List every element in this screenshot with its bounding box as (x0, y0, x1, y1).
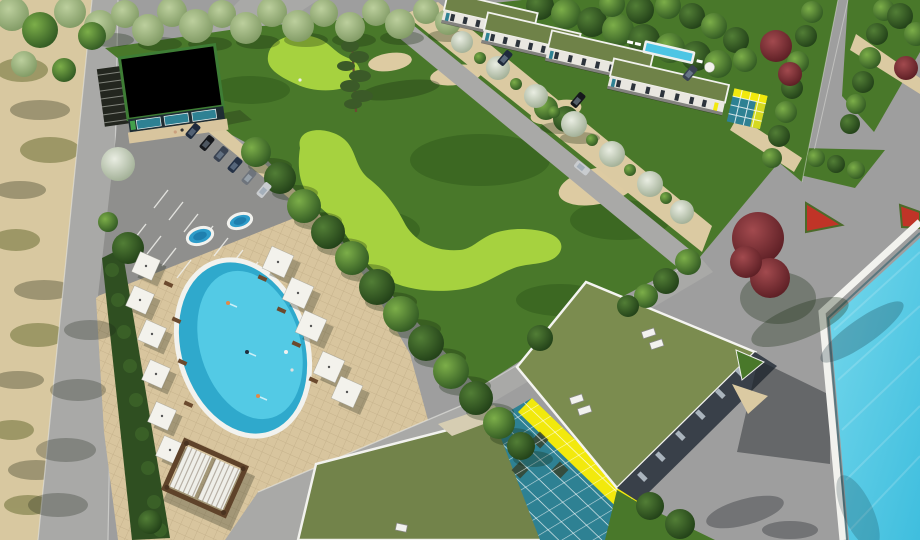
corner-trees-topleft-part (22, 12, 58, 48)
umbrella-poles-part (310, 325, 312, 327)
willow-row-part (230, 12, 262, 44)
tree-band-south-part (433, 353, 469, 389)
sand-dune-strip-part-part (20, 137, 80, 163)
corner-trees-topleft-part (11, 51, 37, 77)
blossom-trees-part (474, 52, 486, 64)
tree-band-south-part (359, 269, 395, 305)
garden-tree-shadows-part (762, 521, 818, 539)
umbrella-poles-part (151, 333, 153, 335)
alley-trees-part (827, 155, 845, 173)
blossom-trees-part (670, 200, 694, 224)
west-hedge-part-part (105, 263, 119, 277)
tree-band-south-part (241, 137, 271, 167)
willow-row-part (179, 9, 213, 43)
tree-band-south-part (335, 241, 369, 275)
umbrella-poles-part (346, 391, 348, 393)
red-trees-part (778, 62, 802, 86)
townhouse-back-trees-part (551, 0, 581, 29)
umbrella-poles-part (139, 299, 141, 301)
umbrella-poles-part (169, 449, 171, 451)
alley-trees-part (866, 23, 888, 45)
alley-trees-part (807, 149, 825, 167)
tree-band-south-part (507, 432, 535, 460)
red-trees-part (730, 246, 762, 278)
parking-tree (98, 212, 118, 232)
golfer-dot (298, 78, 301, 81)
tree-band-south-part (527, 325, 553, 351)
swimmers-part (256, 394, 260, 398)
umbrella-poles-part (277, 261, 279, 263)
west-hedge-part-part (123, 359, 137, 373)
alley-trees-part (775, 101, 797, 123)
umbrella-poles-part (297, 292, 299, 294)
clubhouse-roof (119, 45, 223, 120)
red-trees-part (760, 30, 792, 62)
tree-band-south-part (483, 407, 515, 439)
alley-trees-part (768, 125, 790, 147)
swimmers-part (284, 350, 288, 354)
blossom-trees-part (510, 78, 522, 90)
west-hedge-part-part (135, 427, 149, 441)
tree-band-south-part (459, 381, 493, 415)
west-hedge-part-part (111, 293, 125, 307)
west-hedge-part-part (117, 325, 131, 339)
blossom-trees-part (561, 111, 587, 137)
blossom-trees-part (637, 171, 663, 197)
pine-tree-part-part (349, 51, 369, 63)
willow-row-part (385, 9, 415, 39)
blossom-trees-part (624, 164, 636, 176)
willow-row-part (335, 12, 365, 42)
alley-trees-part (795, 25, 817, 47)
umbrella-poles-part (328, 366, 330, 368)
garden-trees-part (665, 509, 695, 539)
hedge-road-shadows-part (28, 493, 88, 517)
lawn-corner-trees-part (653, 268, 679, 294)
tree-band-south-part (408, 325, 444, 361)
pine-tree-part-part (340, 80, 360, 92)
red-trees-part (894, 56, 918, 80)
pine-tree-part-part (337, 61, 355, 71)
alley-trees-part (859, 47, 881, 69)
hedge-road-shadows-part (36, 438, 96, 462)
lawn-corner-trees-part (675, 249, 701, 275)
sand-dune-strip-part-part (10, 100, 70, 120)
render-image (0, 0, 920, 540)
blossom-trees-part (586, 134, 598, 146)
corner-trees-topleft-part (52, 58, 76, 82)
blossom-trees-part (548, 106, 560, 118)
alley-trees-part (801, 1, 823, 23)
swimmers-part (245, 350, 249, 354)
willow-row-part (310, 0, 338, 27)
west-hedge-part-part (129, 393, 143, 407)
pine-tree-part-part (344, 99, 362, 109)
willow-row-part (282, 10, 314, 42)
alley-trees-part (846, 94, 866, 114)
corner-trees-topleft-part (78, 22, 106, 50)
blossom-trees-part (660, 192, 672, 204)
hedge-road-shadows-part (50, 379, 106, 401)
west-hedge-part-part (141, 461, 155, 475)
umbrella-poles-part (155, 373, 157, 375)
swimmers-part (226, 301, 230, 305)
swimmers-part (290, 368, 293, 371)
blossom-trees-part (599, 141, 625, 167)
umbrella-poles-part (145, 265, 147, 267)
alley-trees-part (852, 71, 874, 93)
tree-band-south-part (383, 296, 419, 332)
west-hedge-part-part (147, 495, 161, 509)
lawn-corner-trees-part (617, 295, 639, 317)
alley-trees-part (762, 148, 782, 168)
blossom-trees-part (524, 84, 548, 108)
resort-aerial-render (0, 0, 920, 540)
blossom-trees-part (451, 31, 473, 53)
alley-trees-part (847, 161, 865, 179)
parking-blossom-tree (101, 147, 135, 181)
townhouse-back-trees-part (701, 13, 727, 39)
tree-band-south-part (311, 215, 345, 249)
garden-trees-part (636, 492, 664, 520)
tree-band-south-part (287, 189, 321, 223)
umbrella-poles-part (161, 415, 163, 417)
alley-trees-part (840, 114, 860, 134)
hedge-tree-2 (138, 510, 162, 534)
townhouse-back-trees-part (733, 48, 757, 72)
hedge-road-shadows-part (64, 320, 116, 340)
